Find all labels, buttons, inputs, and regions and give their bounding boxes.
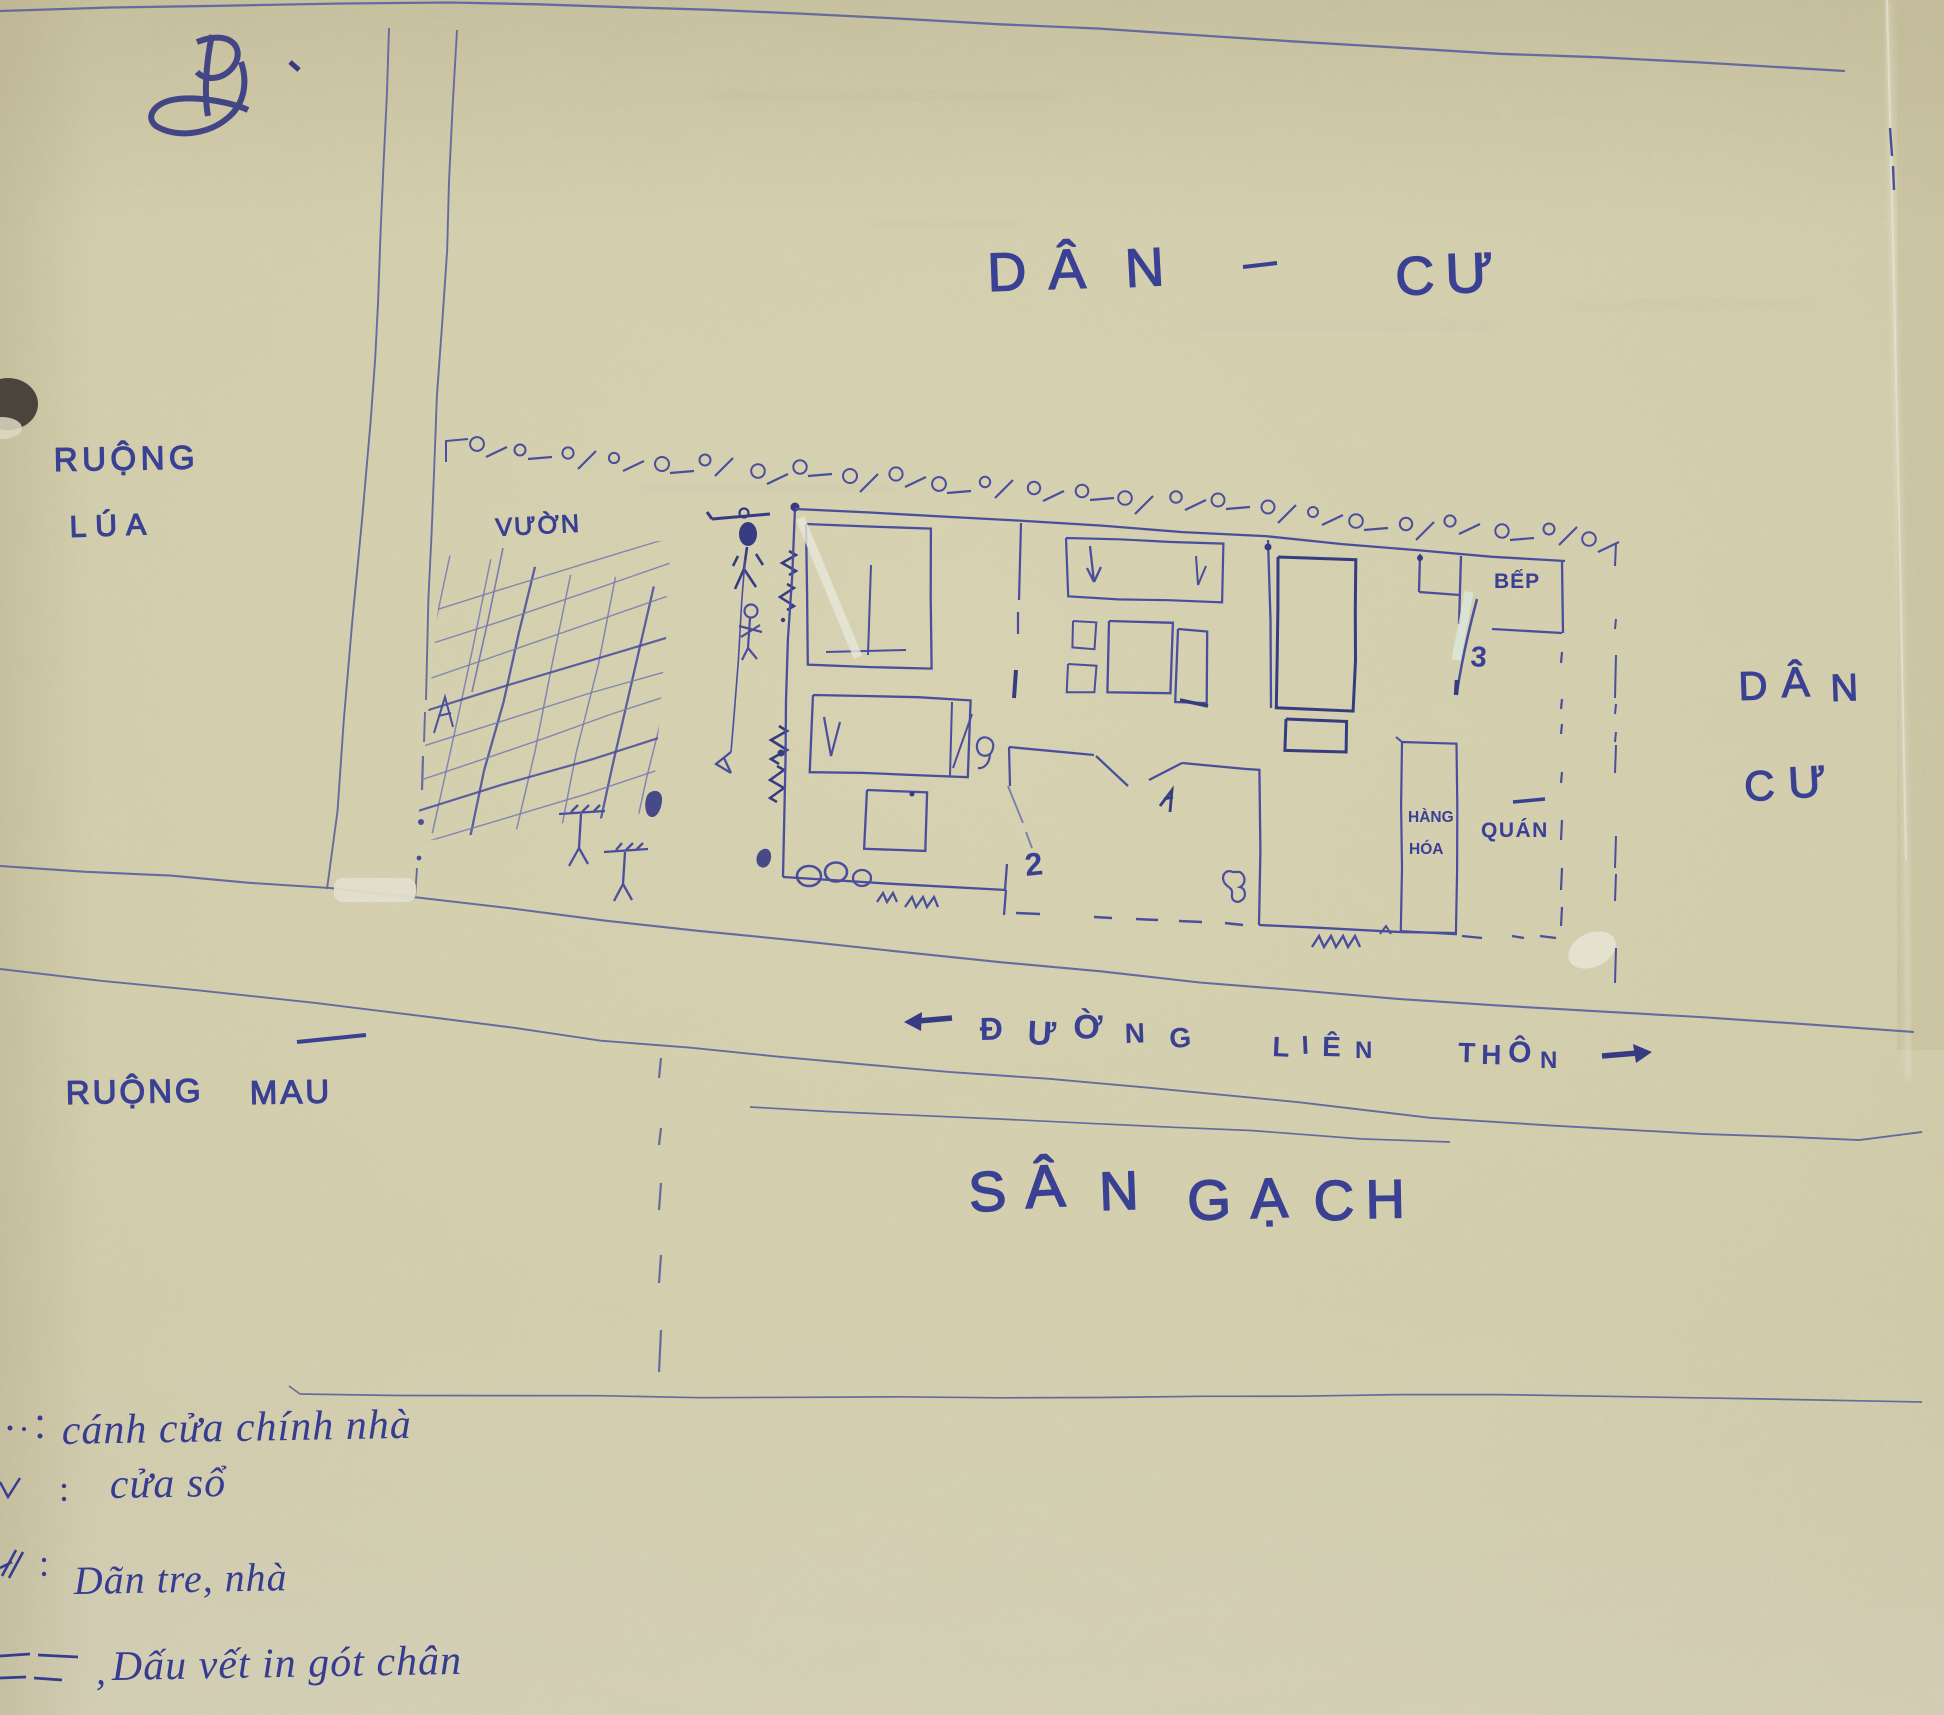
svg-text:N: N [1124, 1017, 1145, 1049]
svg-text:H: H [1365, 1169, 1405, 1230]
svg-text:cửa sổ: cửa sổ [109, 1460, 227, 1508]
svg-text:Đ: Đ [979, 1010, 1003, 1047]
svg-text:Ờ: Ờ [1073, 1008, 1103, 1047]
svg-text:D: D [986, 242, 1027, 303]
svg-text:RUỘNG: RUỘNG [65, 1072, 203, 1111]
svg-text:Â: Â [1047, 237, 1087, 301]
svg-text:T: T [1458, 1037, 1476, 1068]
svg-text:Dấu vết in gót chân: Dấu vết in gót chân [110, 1638, 462, 1690]
svg-text:HÓA: HÓA [1409, 840, 1443, 858]
svg-text:Ư: Ư [1787, 757, 1827, 808]
svg-text:Ư: Ư [1444, 240, 1494, 305]
svg-text:D: D [1738, 664, 1768, 709]
svg-text:C: C [1743, 761, 1776, 810]
svg-text:3: 3 [1470, 641, 1488, 674]
svg-text:G: G [1168, 1022, 1192, 1054]
svg-text:N: N [1830, 667, 1859, 710]
svg-text:,: , [96, 1648, 106, 1693]
svg-text:N: N [1098, 1161, 1139, 1222]
svg-text:S: S [966, 1159, 1008, 1224]
svg-text:N: N [1123, 237, 1165, 299]
svg-text:Ạ: Ạ [1249, 1166, 1289, 1230]
svg-text:G: G [1186, 1168, 1232, 1232]
svg-text:MAU: MAU [249, 1073, 332, 1111]
svg-text:HÀNG: HÀNG [1408, 809, 1454, 826]
svg-text:I: I [1301, 1030, 1310, 1060]
svg-text:L: L [1272, 1031, 1291, 1063]
svg-text:QUÁN: QUÁN [1481, 819, 1549, 842]
svg-text:Ô: Ô [1508, 1035, 1532, 1069]
svg-text:LÚA: LÚA [69, 508, 155, 544]
svg-text:Dãn tre, nhà: Dãn tre, nhà [72, 1554, 288, 1603]
svg-text:C: C [1313, 1168, 1355, 1232]
svg-text:Â: Â [1781, 658, 1811, 706]
svg-text:C: C [1394, 246, 1435, 307]
svg-text:Â: Â [1023, 1152, 1066, 1221]
svg-text:Ê: Ê [1322, 1031, 1341, 1062]
svg-text:N: N [1355, 1037, 1372, 1064]
svg-text:Ư: Ư [1027, 1014, 1058, 1053]
svg-text:2: 2 [1023, 845, 1044, 883]
svg-text:N: N [1540, 1047, 1557, 1074]
svg-text:BẾP: BẾP [1494, 570, 1540, 593]
svg-text:H: H [1481, 1039, 1502, 1070]
svg-text:VƯỜN: VƯỜN [495, 509, 582, 542]
svg-text:RUỘNG: RUỘNG [53, 438, 199, 478]
svg-text:cánh cửa chính nhà: cánh cửa chính nhà [61, 1402, 412, 1454]
